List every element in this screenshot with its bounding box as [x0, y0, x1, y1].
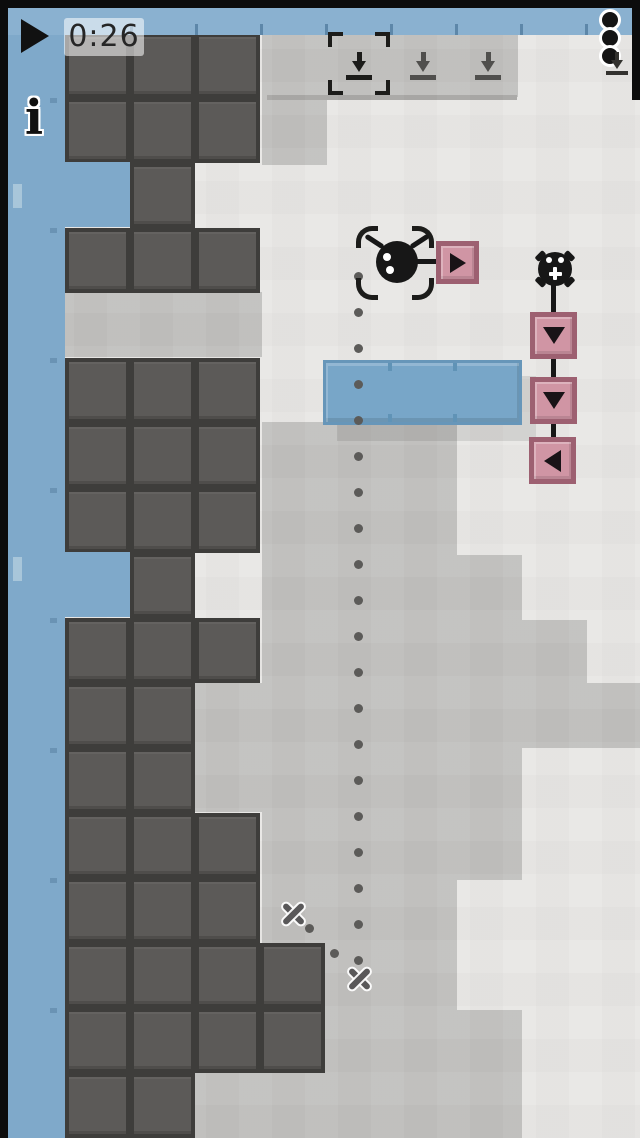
info-label: i	[25, 90, 43, 146]
wall-block-face	[69, 1012, 126, 1069]
movable-platform[interactable]	[323, 360, 522, 425]
wall-highlight-nub	[13, 184, 22, 208]
wall-block	[130, 1008, 195, 1073]
path-dot	[354, 344, 363, 353]
down-arrow-glyph	[416, 61, 430, 72]
wall-block-face	[199, 37, 256, 94]
eye	[383, 253, 391, 261]
down-arrow-glyph	[481, 61, 495, 72]
wall-block-face	[134, 622, 191, 679]
wall-block	[130, 488, 195, 553]
wall-highlight-nub	[13, 557, 22, 581]
sprocket-bug[interactable]	[538, 252, 572, 286]
wall-block	[65, 1008, 130, 1073]
info-button[interactable]: i	[14, 94, 54, 142]
wall-block	[130, 163, 195, 228]
path-dot	[354, 452, 363, 461]
fog-region	[262, 683, 640, 748]
wall-block-face	[134, 882, 191, 939]
wall-block	[260, 1008, 325, 1073]
arrow-baseline	[606, 71, 628, 75]
timer-label: 0:26	[68, 19, 139, 54]
wall-block-face	[134, 362, 191, 419]
path-dot	[354, 920, 363, 929]
wall-block	[195, 488, 260, 553]
wall-block	[260, 943, 325, 1008]
robot-bug[interactable]	[376, 241, 418, 283]
wall-block	[65, 1073, 130, 1138]
wall-block-face	[264, 1012, 321, 1069]
fog-region	[262, 97, 327, 165]
wall-block	[195, 358, 260, 423]
wall-block-face	[69, 882, 126, 939]
top-bar-tick	[455, 24, 458, 35]
wall-tick	[50, 358, 57, 363]
wall-block-face	[199, 947, 256, 1004]
wall-block-face	[69, 427, 126, 484]
path-dot	[305, 924, 314, 933]
top-bar-tick	[260, 24, 263, 35]
wall-block	[130, 618, 195, 683]
game-screen: 0:26 i	[0, 0, 640, 1138]
path-dot	[354, 956, 363, 965]
path-dot	[354, 740, 363, 749]
wall-block	[65, 488, 130, 553]
timer: 0:26	[64, 18, 144, 56]
wall-block	[195, 878, 260, 943]
wall-block-face	[69, 947, 126, 1004]
wall-block	[130, 683, 195, 748]
path-dot	[354, 488, 363, 497]
wall-block	[195, 1008, 260, 1073]
arrow-stem	[486, 52, 491, 61]
chain-command-button[interactable]	[530, 312, 577, 359]
wall-block	[130, 748, 195, 813]
wall-block-face	[199, 232, 256, 289]
top-right-wall	[632, 0, 640, 100]
wall-block-face	[69, 102, 126, 159]
platform-segment-tick	[453, 414, 457, 422]
wall-block	[130, 358, 195, 423]
wall-notch	[8, 552, 130, 617]
wall-block-face	[134, 102, 191, 159]
wall-block	[195, 423, 260, 488]
path-end-x-icon	[348, 967, 371, 990]
right-arrow-glyph	[450, 253, 466, 273]
path-dot	[354, 308, 363, 317]
wall-block	[130, 423, 195, 488]
wall-block	[130, 878, 195, 943]
place-item-tool-icon[interactable]	[410, 52, 436, 80]
path-end-x-icon	[282, 902, 305, 925]
wall-block	[65, 748, 130, 813]
wall-block-face	[134, 167, 191, 224]
fog-region	[65, 292, 262, 357]
top-bar-tick	[195, 24, 198, 35]
wall-block	[195, 813, 260, 878]
wall-block	[130, 553, 195, 618]
platform-segment-tick	[388, 414, 392, 422]
eye	[558, 257, 564, 263]
wall-block-face	[199, 882, 256, 939]
path-dot	[354, 776, 363, 785]
place-item-tool-icon[interactable]	[475, 52, 501, 80]
wall-block	[65, 813, 130, 878]
robot-action-button[interactable]	[436, 241, 479, 284]
fog-region	[195, 1072, 262, 1138]
wall-block	[195, 33, 260, 98]
wall-block-face	[134, 1012, 191, 1069]
wall-block-face	[69, 817, 126, 874]
wall-block-face	[134, 752, 191, 809]
chain-command-button[interactable]	[529, 437, 576, 484]
wall-block-face	[69, 362, 126, 419]
wall-block	[65, 683, 130, 748]
wall-block-face	[199, 427, 256, 484]
path-dot	[354, 416, 363, 425]
wall-block-face	[199, 102, 256, 159]
wall-block	[65, 228, 130, 293]
path-dot	[354, 848, 363, 857]
bracket-corner	[412, 278, 434, 300]
tool-selection-bracket	[328, 32, 390, 95]
path-dot	[354, 524, 363, 533]
bracket-corner	[375, 32, 390, 47]
left-arrow-glyph	[544, 450, 561, 472]
play-button[interactable]	[21, 19, 51, 53]
wall-block-face	[134, 947, 191, 1004]
wall-block	[195, 618, 260, 683]
wall-tick	[50, 748, 57, 753]
wall-block-face	[69, 1077, 126, 1134]
wall-block-face	[264, 947, 321, 1004]
arrow-baseline	[475, 75, 501, 80]
wall-block-face	[134, 557, 191, 614]
path-dot	[354, 812, 363, 821]
path-dot	[354, 380, 363, 389]
path-dot	[330, 949, 339, 958]
arrow-baseline	[410, 75, 436, 80]
wall-block-face	[134, 1077, 191, 1134]
wall-block-face	[199, 1012, 256, 1069]
down-arrow-glyph	[611, 60, 623, 69]
eye	[546, 257, 552, 263]
wall-block	[195, 98, 260, 163]
path-dot	[354, 884, 363, 893]
fog-region	[262, 620, 587, 683]
path-dot	[354, 632, 363, 641]
wall-tick	[50, 488, 57, 493]
wall-block-face	[134, 492, 191, 549]
fog-edge	[267, 95, 517, 100]
wall-notch	[8, 162, 130, 227]
wall-block-face	[134, 427, 191, 484]
path-dot	[354, 704, 363, 713]
wall-block-face	[69, 492, 126, 549]
platform-segment-tick	[388, 363, 392, 371]
place-item-corner-icon[interactable]	[606, 52, 628, 76]
path-dot	[354, 668, 363, 677]
wall-block	[65, 98, 130, 163]
fog-region	[195, 683, 262, 812]
wall-block-face	[134, 817, 191, 874]
wall-block-face	[69, 232, 126, 289]
top-bar-tick	[520, 24, 523, 35]
arrow-stem	[615, 52, 619, 60]
bracket-corner	[375, 80, 390, 95]
bracket-corner	[328, 80, 343, 95]
wall-block	[130, 943, 195, 1008]
chain-command-button[interactable]	[530, 377, 577, 424]
wall-block	[65, 618, 130, 683]
right-arrow-glyph	[21, 19, 49, 53]
bracket-corner	[356, 278, 378, 300]
wall-block-face	[199, 492, 256, 549]
wall-block-face	[199, 817, 256, 874]
eye	[386, 266, 394, 274]
top-bar-tick	[585, 24, 588, 35]
path-dot	[354, 560, 363, 569]
down-arrow-glyph	[543, 392, 565, 409]
wall-block-face	[69, 622, 126, 679]
wall-tick	[50, 228, 57, 233]
wall-block-face	[134, 232, 191, 289]
wall-block	[130, 228, 195, 293]
fog-region	[262, 555, 522, 620]
wall-block-face	[69, 752, 126, 809]
plus-icon	[549, 272, 562, 276]
bracket-corner	[328, 32, 343, 47]
wall-block-face	[134, 687, 191, 744]
wall-block	[65, 358, 130, 423]
wall-block	[65, 423, 130, 488]
playfield	[0, 0, 640, 1138]
arrow-stem	[421, 52, 426, 61]
wall-block-face	[199, 362, 256, 419]
top-bar-tick	[390, 24, 393, 35]
wall-block-face	[199, 622, 256, 679]
path-dot	[354, 596, 363, 605]
wall-block	[130, 1073, 195, 1138]
chain-line	[551, 278, 556, 462]
wall-block	[195, 943, 260, 1008]
wall-block	[65, 878, 130, 943]
wall-block	[195, 228, 260, 293]
wall-block	[130, 98, 195, 163]
wall-tick	[50, 1008, 57, 1013]
wall-tick	[50, 618, 57, 623]
down-arrow-glyph	[543, 327, 565, 344]
wall-block	[65, 943, 130, 1008]
platform-segment-tick	[453, 363, 457, 371]
wall-block	[130, 813, 195, 878]
fog-region	[262, 748, 522, 880]
wall-tick	[50, 878, 57, 883]
wall-block-face	[69, 687, 126, 744]
